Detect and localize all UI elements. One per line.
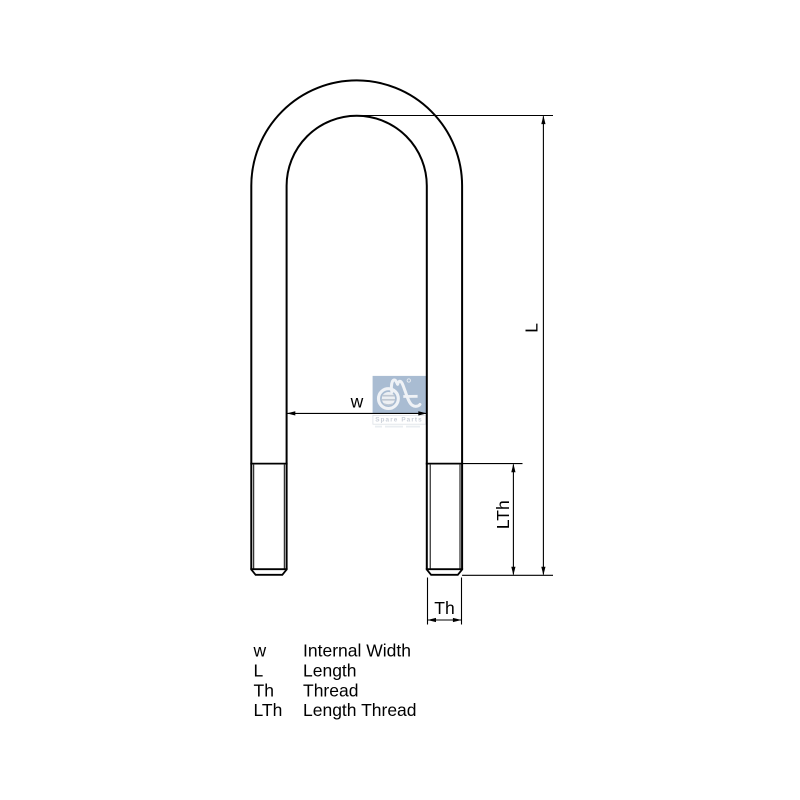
svg-text:w: w [350, 392, 364, 412]
svg-text:LTh: LTh [254, 700, 283, 720]
svg-text:Thread: Thread [303, 680, 358, 700]
svg-text:w: w [253, 641, 267, 661]
svg-text:L: L [522, 323, 542, 333]
svg-text:Th: Th [254, 680, 274, 700]
svg-text:Internal Width: Internal Width [303, 641, 411, 661]
svg-text:Th: Th [434, 598, 454, 618]
svg-text:LTh: LTh [493, 500, 513, 529]
svg-text:Spare Parts: Spare Parts [375, 417, 423, 424]
svg-text:L: L [254, 661, 264, 681]
svg-text:Length Thread: Length Thread [303, 700, 417, 720]
svg-text:Length: Length [303, 661, 357, 681]
